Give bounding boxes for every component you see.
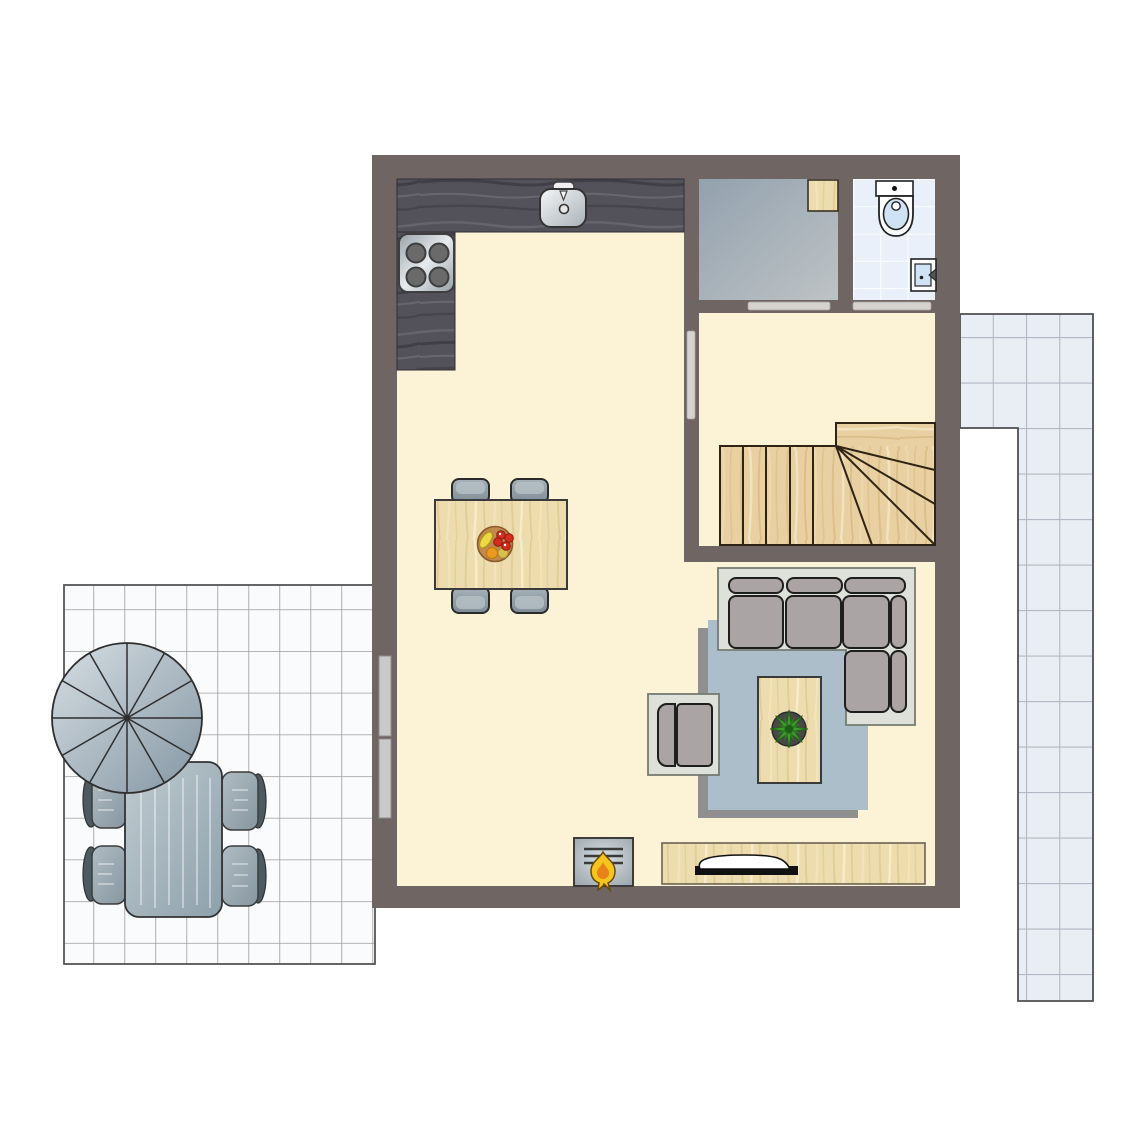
bathroom — [853, 179, 936, 300]
door-opening-utility — [748, 302, 830, 310]
washbasin — [911, 259, 936, 291]
utility-room — [699, 179, 838, 300]
stair-treads — [720, 446, 935, 545]
stair-landing — [836, 423, 935, 446]
dining-chair — [511, 587, 548, 613]
potted-plant-icon — [770, 710, 808, 748]
burner — [407, 268, 426, 287]
drain-icon — [560, 205, 569, 214]
wall-utility-bath — [838, 179, 853, 300]
tv-sideboard — [662, 843, 925, 884]
wood-stove — [574, 838, 633, 890]
shelf-box — [808, 180, 838, 211]
door-opening-stair-hall — [687, 331, 695, 419]
floor-plan-canvas — [0, 0, 1145, 1145]
terrace — [52, 585, 375, 964]
garden-chair — [222, 772, 266, 830]
dining-chair — [452, 587, 489, 613]
coffee-table — [758, 677, 821, 783]
parasol — [52, 643, 202, 793]
window-left-upper — [379, 656, 391, 736]
tv-screen — [699, 855, 790, 869]
garden-chair — [222, 846, 266, 906]
outdoor-tiled-path — [960, 314, 1093, 1001]
burner — [407, 244, 426, 263]
cooktop — [399, 234, 454, 292]
wall-under-stairs — [684, 546, 935, 562]
burner — [430, 244, 449, 263]
armchair — [648, 694, 719, 775]
kitchen-sink — [540, 182, 586, 227]
fruit-bowl-icon — [477, 527, 513, 562]
window-left-lower — [379, 739, 391, 818]
toilet — [876, 181, 913, 236]
door-opening-bathroom — [853, 302, 931, 310]
burner — [430, 268, 449, 287]
garden-chair — [83, 846, 126, 904]
